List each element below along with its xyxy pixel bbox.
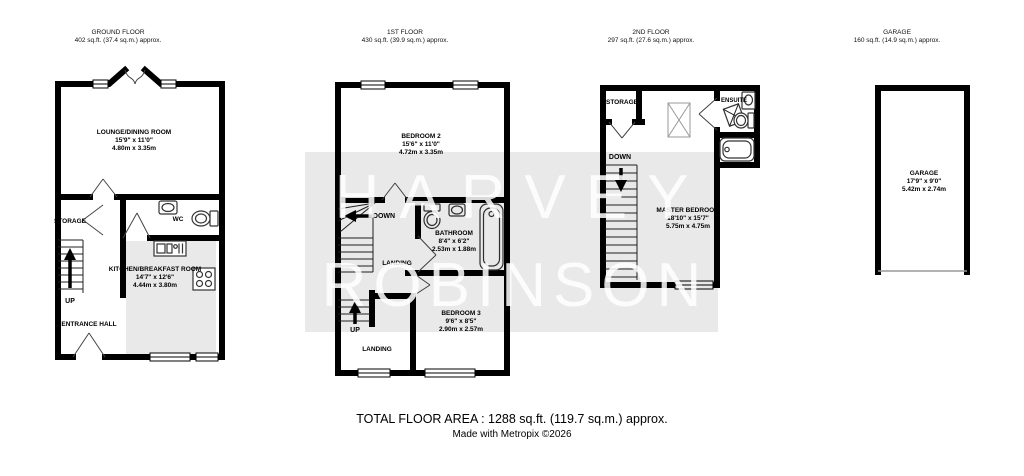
- metropix-credit-text: Made with Metropix ©2026: [452, 429, 571, 440]
- window: [358, 369, 390, 377]
- first-floor-header: 1ST FLOOR 430 sq.ft. (39.9 sq.m.) approx…: [362, 29, 449, 44]
- up-ground-label: UP: [65, 298, 75, 306]
- second-floor-area: 297 sq.ft. (27.6 sq.m.) approx.: [608, 37, 695, 45]
- staircase-down: [338, 203, 375, 272]
- wc-sink: [159, 201, 177, 214]
- down-first-label: DOWN: [373, 213, 395, 221]
- garage-header: GARAGE 160 sq.ft. (14.9 sq.m.) approx.: [854, 29, 941, 44]
- window: [196, 353, 218, 361]
- ensuite-door: [699, 98, 717, 130]
- ensuite-toilet: [734, 113, 754, 128]
- storage-ground-label: STORAGE: [54, 218, 86, 226]
- bedroom2-label: BEDROOM 2 15'6" x 11'0" 4.72m x 3.35m: [399, 133, 443, 157]
- bathroom-label: BATHROOM 8'4" x 6'2" 2.53m x 1.88m: [432, 230, 476, 254]
- storage-door: [609, 122, 635, 138]
- up-first-label: UP: [350, 327, 360, 335]
- down-second-label: DOWN: [609, 154, 631, 162]
- bathroom-sink: [449, 204, 465, 216]
- kitchen-sink: [154, 241, 186, 256]
- lounge-door: [90, 179, 117, 197]
- rooflight: [668, 103, 690, 137]
- wc-label: WC: [173, 216, 184, 224]
- garage-label: GARAGE 17'9" x 9'0" 5.42m x 2.74m: [902, 170, 946, 194]
- window: [453, 81, 478, 89]
- garage-area: 160 sq.ft. (14.9 sq.m.) approx.: [854, 37, 941, 45]
- french-doors: [125, 70, 145, 84]
- landing-upper-label: LANDING: [382, 260, 412, 268]
- ensuite-label: ENSUITE: [721, 97, 747, 105]
- storage-second-label: STORAGE: [606, 99, 638, 107]
- bathtub: [480, 204, 503, 270]
- second-floor-plan: [595, 80, 765, 295]
- front-door: [73, 333, 105, 357]
- second-floor-header: 2ND FLOOR 297 sq.ft. (27.6 sq.m.) approx…: [608, 29, 695, 44]
- window: [361, 81, 385, 89]
- ground-floor-plan: [50, 60, 230, 365]
- bathroom-toilet: [424, 204, 440, 229]
- garage-title: GARAGE: [854, 29, 941, 37]
- lounge-label: LOUNGE/DINING ROOM 15'9" x 11'0" 4.80m x…: [97, 129, 171, 153]
- window: [425, 369, 475, 377]
- window: [93, 80, 108, 88]
- total-floor-area-text: TOTAL FLOOR AREA : 1288 sq.ft. (119.7 sq…: [356, 412, 667, 426]
- wc-door: [123, 213, 150, 238]
- bedroom3-label: BEDROOM 3 9'6" x 8'5" 2.90m x 2.57m: [439, 310, 483, 334]
- first-floor-area: 430 sq.ft. (39.9 sq.m.) approx.: [362, 37, 449, 45]
- first-floor-title: 1ST FLOOR: [362, 29, 449, 37]
- kitchen-label: KITCHEN/BREAKFAST ROOM 14'7" x 12'6" 4.4…: [109, 266, 201, 290]
- wc-toilet: [192, 211, 218, 226]
- ground-floor-title: GROUND FLOOR: [75, 29, 162, 37]
- master-bedroom-label: MASTER BEDROOM 18'10" x 15'7" 5.75m x 4.…: [656, 207, 719, 231]
- bedroom2-door: [382, 183, 408, 200]
- kitchen-floor-shading: [126, 241, 216, 354]
- entrance-hall-label: ENTRANCE HALL: [61, 321, 116, 329]
- ground-floor-header: GROUND FLOOR 402 sq.ft. (37.4 sq.m.) app…: [75, 29, 162, 44]
- down-arrow-icon: [615, 168, 627, 192]
- ensuite-bathtub: [720, 138, 754, 161]
- floorplan-page: GROUND FLOOR 402 sq.ft. (37.4 sq.m.) app…: [0, 0, 1024, 476]
- landing-lower-label: LANDING: [362, 346, 392, 354]
- bedroom3-door: [413, 273, 430, 296]
- second-floor-title: 2ND FLOOR: [608, 29, 695, 37]
- ground-floor-area: 402 sq.ft. (37.4 sq.m.) approx.: [75, 37, 162, 45]
- window: [161, 80, 176, 88]
- window: [675, 281, 713, 289]
- window: [150, 353, 190, 361]
